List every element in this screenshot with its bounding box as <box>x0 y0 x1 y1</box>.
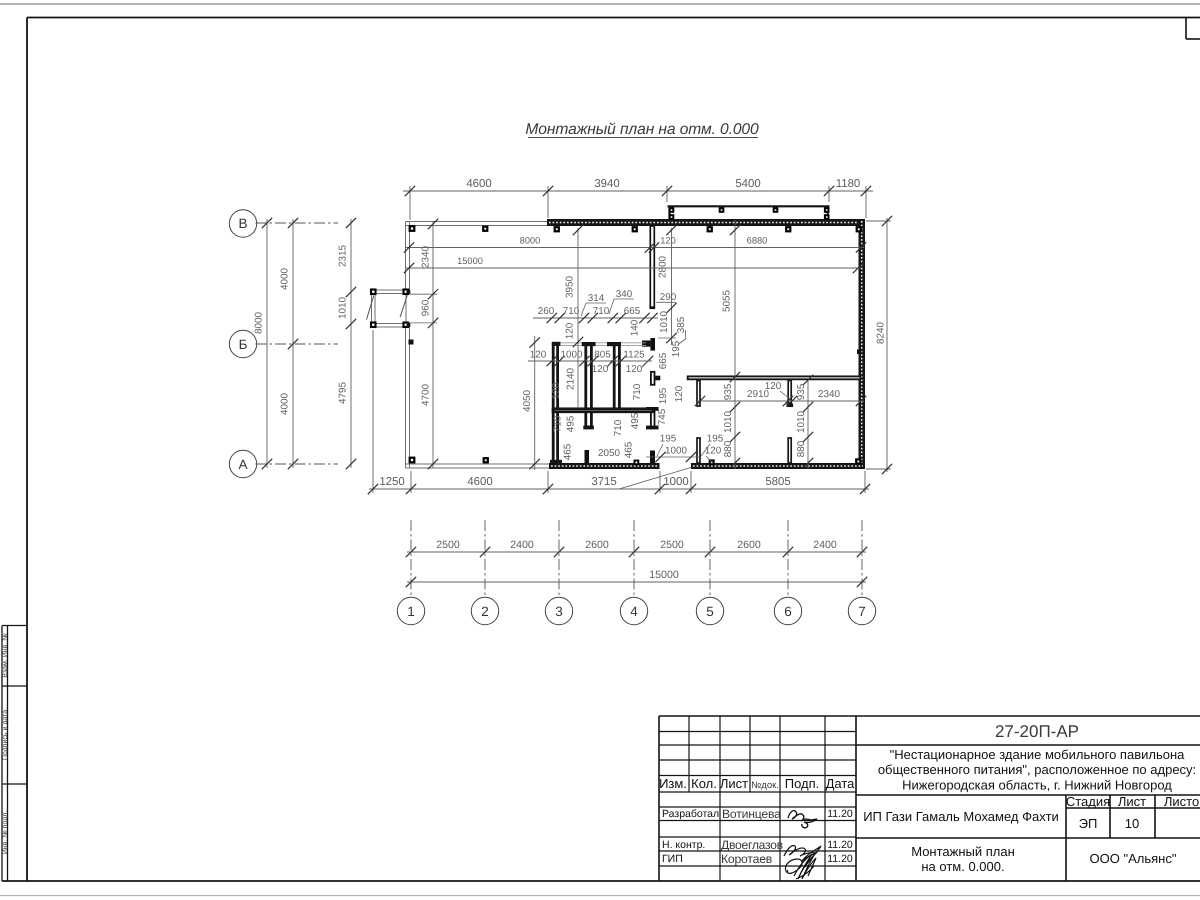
svg-text:Монтажный план на отм. 0.000: Монтажный план на отм. 0.000 <box>525 121 759 138</box>
svg-text:3950: 3950 <box>565 276 576 298</box>
svg-text:Подпись и дата: Подпись и дата <box>2 710 9 760</box>
svg-text:1000: 1000 <box>665 446 687 457</box>
svg-text:Н. контр.: Н. контр. <box>662 839 705 851</box>
svg-text:495: 495 <box>630 412 641 429</box>
svg-text:Нижегородская область, г. Нижн: Нижегородская область, г. Нижний Новгоро… <box>902 778 1172 793</box>
svg-text:935: 935 <box>723 383 734 400</box>
svg-text:1000: 1000 <box>561 350 583 361</box>
svg-text:4000: 4000 <box>280 393 291 415</box>
svg-text:8000: 8000 <box>520 236 541 246</box>
svg-text:120: 120 <box>765 381 782 392</box>
svg-text:2315: 2315 <box>338 245 349 267</box>
svg-text:Б: Б <box>239 337 248 352</box>
svg-text:2340: 2340 <box>421 246 432 268</box>
svg-text:3940: 3940 <box>594 178 619 190</box>
svg-text:465: 465 <box>563 443 574 460</box>
svg-text:2: 2 <box>481 604 489 619</box>
svg-text:11.20: 11.20 <box>827 839 853 851</box>
svg-text:495: 495 <box>566 415 577 432</box>
svg-text:2600: 2600 <box>737 539 761 551</box>
svg-text:880: 880 <box>723 440 734 457</box>
svg-text:120: 120 <box>565 322 576 339</box>
svg-text:120: 120 <box>674 385 685 402</box>
svg-text:260: 260 <box>538 306 555 317</box>
svg-text:2140: 2140 <box>566 368 577 390</box>
svg-text:2050: 2050 <box>598 448 620 459</box>
svg-text:4700: 4700 <box>421 384 432 406</box>
svg-text:5400: 5400 <box>735 178 760 190</box>
svg-text:195: 195 <box>707 434 724 445</box>
svg-text:2600: 2600 <box>585 539 609 551</box>
svg-text:665: 665 <box>658 352 669 369</box>
svg-text:195: 195 <box>658 387 669 404</box>
svg-text:195: 195 <box>671 340 682 357</box>
svg-text:1250: 1250 <box>379 476 404 488</box>
svg-text:710: 710 <box>563 306 580 317</box>
svg-text:7: 7 <box>858 604 866 619</box>
svg-text:Взам. Инв. №: Взам. Инв. № <box>2 633 9 678</box>
svg-text:6: 6 <box>784 604 792 619</box>
svg-text:1010: 1010 <box>796 411 807 433</box>
svg-text:11.20: 11.20 <box>827 853 853 865</box>
svg-text:2400: 2400 <box>813 539 837 551</box>
svg-text:на отм. 0.000.: на отм. 0.000. <box>921 859 1004 874</box>
svg-text:8240: 8240 <box>876 322 887 344</box>
svg-text:290: 290 <box>660 292 677 303</box>
svg-text:1: 1 <box>407 604 415 619</box>
svg-text:120: 120 <box>626 364 643 375</box>
svg-text:1180: 1180 <box>836 178 861 190</box>
svg-text:710: 710 <box>553 415 564 432</box>
svg-text:Лист: Лист <box>720 776 748 791</box>
svg-text:2400: 2400 <box>510 539 534 551</box>
svg-text:1010: 1010 <box>659 311 670 333</box>
svg-text:27-20П-АР: 27-20П-АР <box>995 722 1079 741</box>
svg-text:6880: 6880 <box>747 236 768 246</box>
svg-text:4000: 4000 <box>280 268 291 290</box>
svg-text:Стадия: Стадия <box>1066 794 1110 809</box>
svg-text:ООО "Альянс": ООО "Альянс" <box>1090 851 1177 866</box>
svg-text:140: 140 <box>630 319 641 336</box>
svg-text:общественного питания", распол: общественного питания", расположенное по… <box>878 762 1196 777</box>
svg-text:2500: 2500 <box>660 539 684 551</box>
svg-text:195: 195 <box>660 434 677 445</box>
svg-text:710: 710 <box>632 383 643 400</box>
svg-text:4795: 4795 <box>338 382 349 404</box>
svg-text:2500: 2500 <box>436 539 460 551</box>
svg-text:340: 340 <box>616 289 633 300</box>
svg-text:805: 805 <box>594 350 611 361</box>
svg-text:11.20: 11.20 <box>827 808 853 820</box>
svg-text:120: 120 <box>530 350 547 361</box>
svg-text:710: 710 <box>613 419 624 436</box>
svg-text:Изм.: Изм. <box>659 776 687 791</box>
svg-text:5: 5 <box>706 604 714 619</box>
svg-text:710: 710 <box>593 306 610 317</box>
svg-text:В: В <box>238 216 247 231</box>
svg-text:385: 385 <box>676 316 687 333</box>
svg-text:ИП Гази Гамаль Мохамед Фахти: ИП Гази Гамаль Мохамед Фахти <box>863 809 1059 824</box>
svg-text:880: 880 <box>796 440 807 457</box>
svg-text:А: А <box>238 457 247 472</box>
svg-text:5055: 5055 <box>722 290 733 312</box>
svg-text:Подп.: Подп. <box>785 776 820 791</box>
svg-text:Коротаев: Коротаев <box>721 852 772 866</box>
svg-text:ЭП: ЭП <box>1079 816 1098 831</box>
svg-text:4600: 4600 <box>466 178 491 190</box>
svg-text:Монтажный план: Монтажный план <box>911 844 1015 859</box>
svg-text:4050: 4050 <box>522 390 533 412</box>
svg-text:2800: 2800 <box>658 256 669 278</box>
svg-text:120: 120 <box>660 236 676 246</box>
svg-text:314: 314 <box>588 293 605 304</box>
svg-text:665: 665 <box>624 306 641 317</box>
svg-text:1010: 1010 <box>723 411 734 433</box>
svg-text:5805: 5805 <box>765 476 790 488</box>
svg-text:745: 745 <box>657 408 668 425</box>
svg-text:120: 120 <box>551 382 562 399</box>
svg-text:ГИП: ГИП <box>662 853 683 865</box>
svg-text:8000: 8000 <box>254 312 265 334</box>
svg-text:Листов: Листов <box>1164 794 1200 809</box>
svg-text:3: 3 <box>555 604 563 619</box>
svg-text:960: 960 <box>421 299 432 316</box>
svg-text:1000: 1000 <box>663 476 688 488</box>
svg-text:15000: 15000 <box>457 256 483 266</box>
svg-text:Инв. № подл.: Инв. № подл. <box>2 811 9 855</box>
svg-text:1125: 1125 <box>623 350 645 361</box>
svg-text:3715: 3715 <box>591 476 616 488</box>
svg-text:1010: 1010 <box>338 297 349 319</box>
svg-text:Кол.: Кол. <box>691 776 717 791</box>
svg-text:10: 10 <box>1125 816 1139 831</box>
svg-text:Лист: Лист <box>1118 794 1146 809</box>
svg-text:15000: 15000 <box>649 569 679 581</box>
svg-text:Разработал: Разработал <box>662 808 719 820</box>
svg-text:Дата: Дата <box>826 776 856 791</box>
svg-text:935: 935 <box>796 383 807 400</box>
svg-text:№док.: №док. <box>751 780 779 791</box>
svg-text:Вотинцева: Вотинцева <box>722 807 781 821</box>
svg-text:4: 4 <box>630 604 638 619</box>
svg-text:"Нестационарное здание мобильн: "Нестационарное здание мобильного павиль… <box>890 747 1186 762</box>
svg-text:120: 120 <box>592 364 609 375</box>
svg-text:465: 465 <box>624 441 635 458</box>
svg-text:4600: 4600 <box>467 476 492 488</box>
svg-text:2340: 2340 <box>818 389 840 400</box>
svg-text:Двоеглазов: Двоеглазов <box>721 838 783 852</box>
